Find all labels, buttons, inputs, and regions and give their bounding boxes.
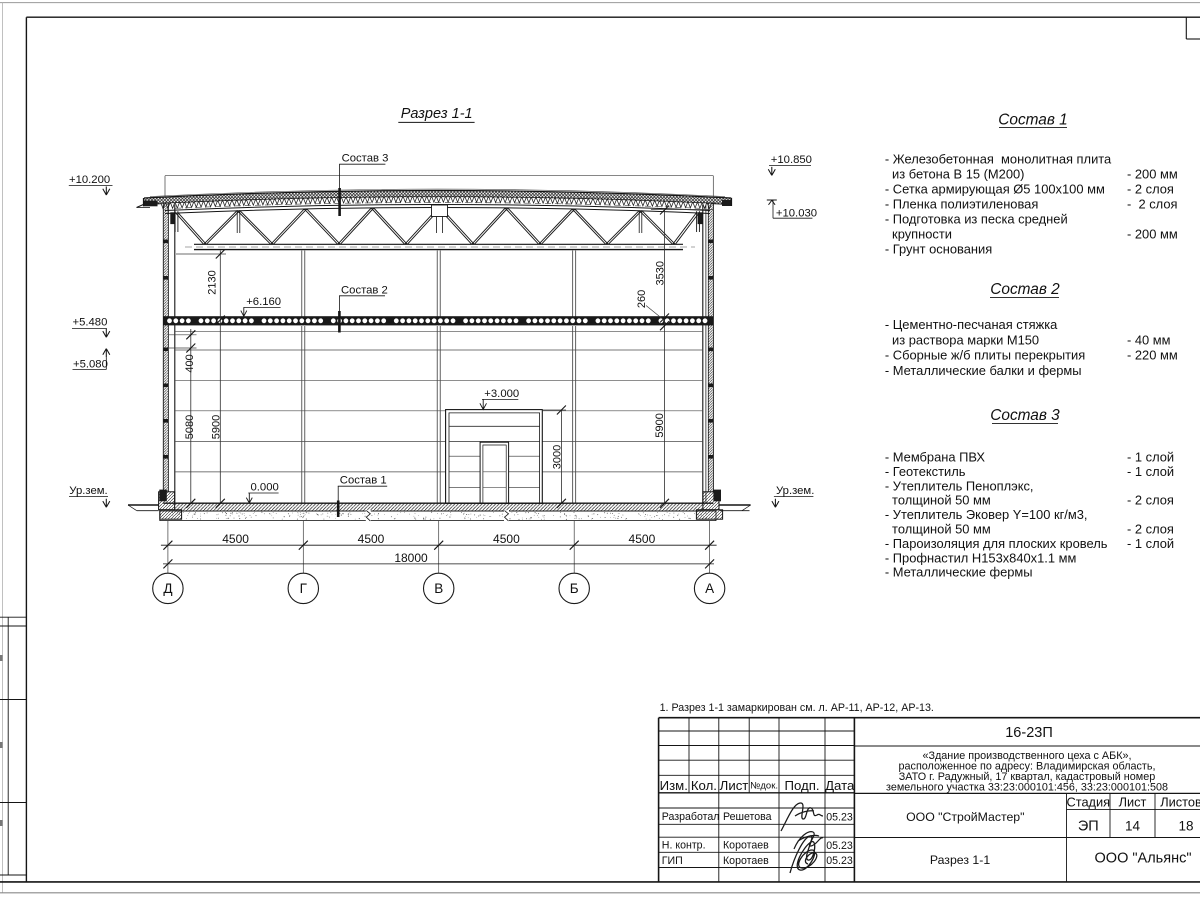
svg-text:из раствора марки М150: из раствора марки М150	[885, 332, 1039, 347]
svg-text:Разрез 1-1: Разрез 1-1	[401, 106, 473, 122]
svg-text:земельного участка 33:23:00010: земельного участка 33:23:000101:456, 33:…	[886, 782, 1168, 794]
svg-text:- Цементно-песчаная стяжка: - Цементно-песчаная стяжка	[885, 317, 1058, 332]
svg-text:- Железобетонная монолитная п: - Железобетонная монолитная плита	[885, 151, 1112, 166]
svg-text:ООО "СтройМастер": ООО "СтройМастер"	[906, 810, 1024, 824]
svg-text:Стадия: Стадия	[1066, 795, 1110, 810]
svg-text:18000: 18000	[394, 551, 428, 565]
svg-text:05.23: 05.23	[826, 812, 853, 824]
svg-text:05.23: 05.23	[826, 855, 853, 867]
svg-text:+5.480: +5.480	[73, 317, 108, 329]
svg-text:+10.850: +10.850	[771, 154, 812, 166]
svg-text:Д: Д	[163, 581, 172, 596]
svg-text:- 2 слоя: - 2 слоя	[1127, 522, 1174, 537]
svg-text:- Металлические фермы: - Металлические фермы	[885, 565, 1033, 580]
svg-text:05.23: 05.23	[826, 840, 853, 852]
svg-text:- 2 слоя: - 2 слоя	[1127, 493, 1174, 508]
svg-text:- 220 мм: - 220 мм	[1127, 348, 1178, 363]
svg-text:Состав 1: Состав 1	[340, 474, 387, 486]
svg-text:Состав 1: Состав 1	[998, 111, 1067, 128]
svg-text:Изм.: Изм.	[660, 778, 688, 793]
svg-text:- 40 мм: - 40 мм	[1127, 332, 1171, 347]
svg-text:Разрез 1-1: Разрез 1-1	[930, 853, 991, 867]
svg-text:5900: 5900	[211, 415, 223, 439]
svg-text:+3.000: +3.000	[484, 388, 519, 400]
svg-text:толщиной 50 мм: толщиной 50 мм	[885, 522, 991, 537]
svg-text:- Подготовка из песка средней: - Подготовка из песка средней	[885, 212, 1068, 227]
svg-text:Н. контр.: Н. контр.	[662, 840, 706, 852]
svg-text:18: 18	[1178, 819, 1193, 834]
svg-text:4500: 4500	[493, 532, 520, 546]
svg-text:+5.080: +5.080	[73, 358, 108, 370]
svg-text:Лист: Лист	[1119, 795, 1147, 810]
svg-text:А: А	[705, 581, 714, 596]
svg-text:- Пароизоляция для плоских кро: - Пароизоляция для плоских кровель	[885, 536, 1108, 551]
svg-text:Дата: Дата	[825, 778, 855, 793]
svg-text:№док.: №док.	[750, 781, 778, 792]
svg-text:Б: Б	[570, 581, 579, 596]
svg-text:4500: 4500	[222, 532, 249, 546]
svg-text:Лист: Лист	[720, 778, 749, 793]
svg-text:ООО "Альянс": ООО "Альянс"	[1095, 851, 1192, 867]
svg-text:0.000: 0.000	[251, 482, 279, 494]
svg-text:В: В	[434, 581, 443, 596]
svg-text:5080: 5080	[184, 415, 196, 439]
svg-text:- 200 мм: - 200 мм	[1127, 227, 1178, 242]
svg-text:Коротаев: Коротаев	[723, 840, 769, 852]
svg-text:260: 260	[636, 290, 648, 308]
svg-text:1. Разрез 1-1 замаркирован см.: 1. Разрез 1-1 замаркирован см. л. АР-11,…	[660, 702, 934, 714]
svg-text:- Утеплитель Пеноплэкс,: - Утеплитель Пеноплэкс,	[885, 478, 1034, 493]
svg-text:Состав 2: Состав 2	[341, 284, 388, 296]
svg-text:- Металлические балки и фермы: - Металлические балки и фермы	[885, 363, 1082, 378]
svg-text:- Утеплитель Эковер Y=100 кг/м: - Утеплитель Эковер Y=100 кг/м3,	[885, 507, 1088, 522]
svg-text:ЭП: ЭП	[1078, 819, 1099, 835]
svg-text:16-23П: 16-23П	[1005, 725, 1053, 741]
svg-text:- 2 слоя: - 2 слоя	[1127, 181, 1174, 196]
svg-text:3530: 3530	[655, 261, 667, 285]
svg-text:- 200 мм: - 200 мм	[1127, 166, 1178, 181]
svg-text:2130: 2130	[207, 270, 219, 294]
svg-text:Ур.зем.: Ур.зем.	[69, 485, 107, 497]
svg-text:Г: Г	[300, 581, 308, 596]
svg-text:Состав 3: Состав 3	[342, 152, 389, 164]
svg-text:400: 400	[184, 354, 196, 372]
svg-text:+10.200: +10.200	[69, 174, 110, 186]
svg-text:Ур.зем.: Ур.зем.	[776, 485, 814, 497]
svg-text:- Профнастил Н153х840х1.1 мм: - Профнастил Н153х840х1.1 мм	[885, 550, 1076, 565]
svg-text:Решетова: Решетова	[723, 811, 772, 823]
svg-text:крупности: крупности	[885, 227, 952, 242]
svg-text:- 2 слоя: - 2 слоя	[1127, 197, 1177, 212]
svg-text:- 1 слой: - 1 слой	[1127, 464, 1174, 479]
svg-text:Коротаев: Коротаев	[723, 855, 769, 867]
svg-text:- Сборные ж/б плиты перекрытия: - Сборные ж/б плиты перекрытия	[885, 348, 1085, 363]
svg-text:+10.030: +10.030	[776, 207, 817, 219]
svg-text:- 1 слой: - 1 слой	[1127, 536, 1174, 551]
svg-text:- Геотекстиль: - Геотекстиль	[885, 464, 966, 479]
svg-text:Разработал: Разработал	[662, 811, 720, 823]
svg-text:- Грунт основания: - Грунт основания	[885, 242, 992, 257]
svg-text:ГИП: ГИП	[662, 855, 683, 867]
svg-text:толщиной 50 мм: толщиной 50 мм	[885, 493, 991, 508]
svg-text:- Мембрана ПВХ: - Мембрана ПВХ	[885, 450, 986, 465]
svg-text:из бетона В 15 (М200): из бетона В 15 (М200)	[885, 166, 1025, 181]
svg-text:- Сетка армирующая Ø5 100х100: - Сетка армирующая Ø5 100х100 мм	[885, 181, 1105, 196]
svg-text:Листов: Листов	[1160, 795, 1200, 810]
svg-text:+6.160: +6.160	[246, 296, 281, 308]
svg-text:3000: 3000	[551, 445, 563, 469]
svg-text:- Пленка полиэтиленовая: - Пленка полиэтиленовая	[885, 197, 1038, 212]
svg-text:4500: 4500	[629, 532, 656, 546]
svg-text:Состав 3: Состав 3	[990, 407, 1060, 424]
svg-text:Подп.: Подп.	[784, 778, 819, 793]
svg-text:14: 14	[1125, 819, 1141, 834]
svg-text:- 1 слой: - 1 слой	[1127, 450, 1174, 465]
svg-text:4500: 4500	[358, 532, 385, 546]
svg-text:Кол.: Кол.	[691, 778, 717, 793]
svg-text:Состав 2: Состав 2	[990, 281, 1060, 298]
svg-text:5900: 5900	[654, 413, 666, 437]
